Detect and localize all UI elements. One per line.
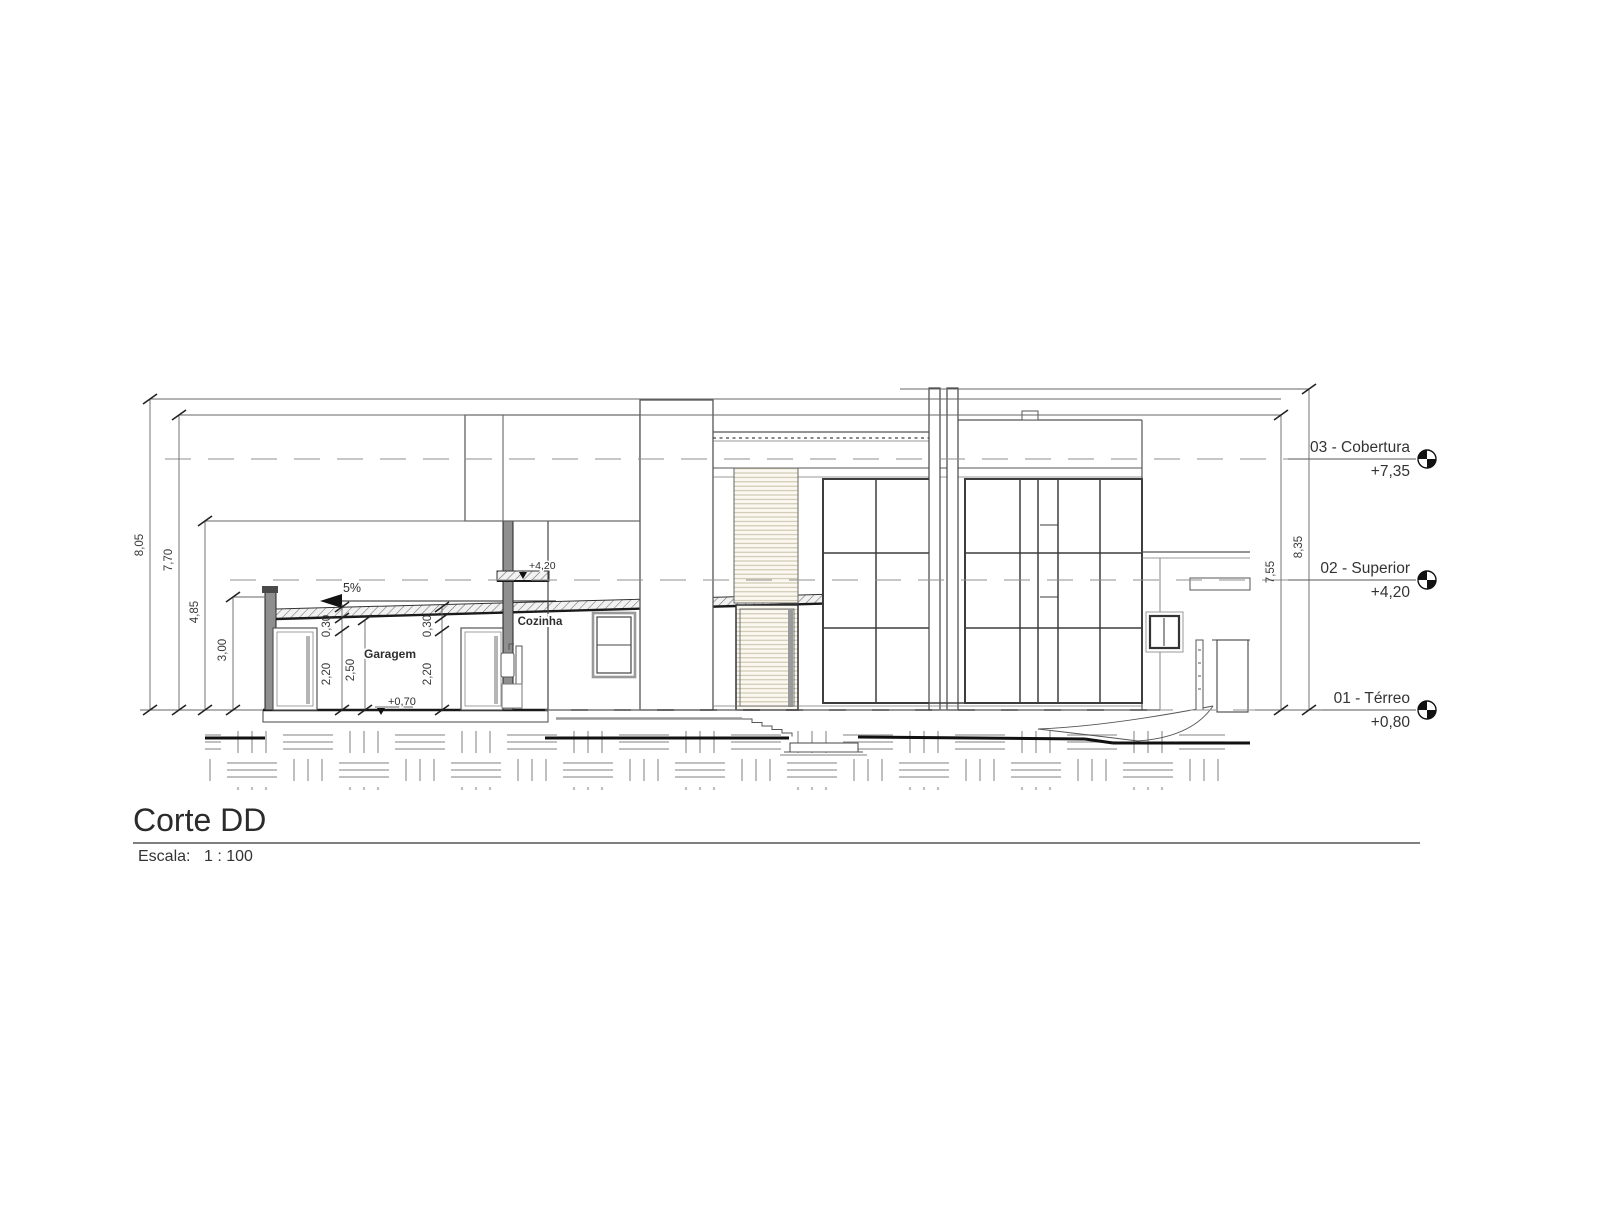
level-labels: 03 - Cobertura +7,35 02 - Superior +4,20… (1310, 439, 1410, 731)
dim-label-7-70: 7,70 (163, 549, 175, 571)
garage-door-left (273, 628, 317, 710)
level-elev-superior: +4,20 (1371, 584, 1411, 601)
garage-door-right (461, 628, 505, 710)
garage-section (262, 586, 913, 722)
dim-label-slab-right: 0,30 (422, 615, 434, 637)
tall-block (640, 400, 713, 710)
dim-label-clear: 2,50 (345, 659, 357, 681)
floor-spot-label: +0,70 (388, 696, 416, 708)
level-marker-symbol (1418, 450, 1436, 468)
level-name-terreo: 01 - Térreo (1334, 690, 1410, 707)
dim-label-8-35: 8,35 (1293, 536, 1305, 558)
dim-label-4-85: 4,85 (189, 601, 201, 623)
level-name-cobertura: 03 - Cobertura (1310, 439, 1410, 456)
louver-panel (734, 468, 798, 710)
dim-label-door-right: 2,20 (422, 663, 434, 685)
level-line-cobertura (165, 450, 1436, 468)
level-marker-symbol (1418, 571, 1436, 589)
annotation-labels: 5% Garagem Cozinha +0,70 +4,20 (343, 560, 563, 708)
curtain-wall-right (965, 479, 1142, 703)
facade-posts (929, 388, 958, 710)
title-block: Corte DD Escala: 1 : 100 (133, 802, 1420, 865)
section-drawing-svg: 8,05 7,70 4,85 3,00 7,55 8,35 0,30 2,20 … (0, 0, 1600, 1231)
garden-wall (1196, 640, 1250, 712)
level-elev-terreo: +0,80 (1371, 714, 1411, 731)
drawing-title: Corte DD (133, 802, 266, 838)
dim-label-slab-left: 0,30 (321, 615, 333, 637)
roof-block (1022, 411, 1038, 420)
upper-block-left (465, 415, 640, 521)
ground-hatch (205, 726, 1225, 790)
scale-value: 1 : 100 (204, 848, 253, 865)
scale-label: Escala: (138, 848, 190, 865)
level-name-superior: 02 - Superior (1320, 560, 1410, 577)
dim-label-total-left: 8,05 (134, 534, 146, 556)
small-window (1146, 612, 1183, 652)
right-wing (1142, 552, 1250, 712)
kitchen-room-label: Cozinha (518, 616, 563, 628)
dim-label-door-left: 2,20 (321, 663, 333, 685)
kitchen-fixtures (501, 644, 522, 708)
garage-room-label: Garagem (364, 647, 416, 661)
slab-spot-label: +4,20 (529, 560, 556, 572)
dim-label-3-00: 3,00 (217, 639, 229, 661)
curtain-wall-left (823, 479, 930, 703)
wall-window (593, 613, 635, 677)
dim-label-7-55: 7,55 (1265, 561, 1277, 583)
section-drawing-page: 8,05 7,70 4,85 3,00 7,55 8,35 0,30 2,20 … (0, 0, 1600, 1231)
roof-slope-label: 5% (343, 581, 361, 595)
level-elev-cobertura: +7,35 (1371, 463, 1410, 480)
level-marker-symbol (1418, 701, 1436, 719)
